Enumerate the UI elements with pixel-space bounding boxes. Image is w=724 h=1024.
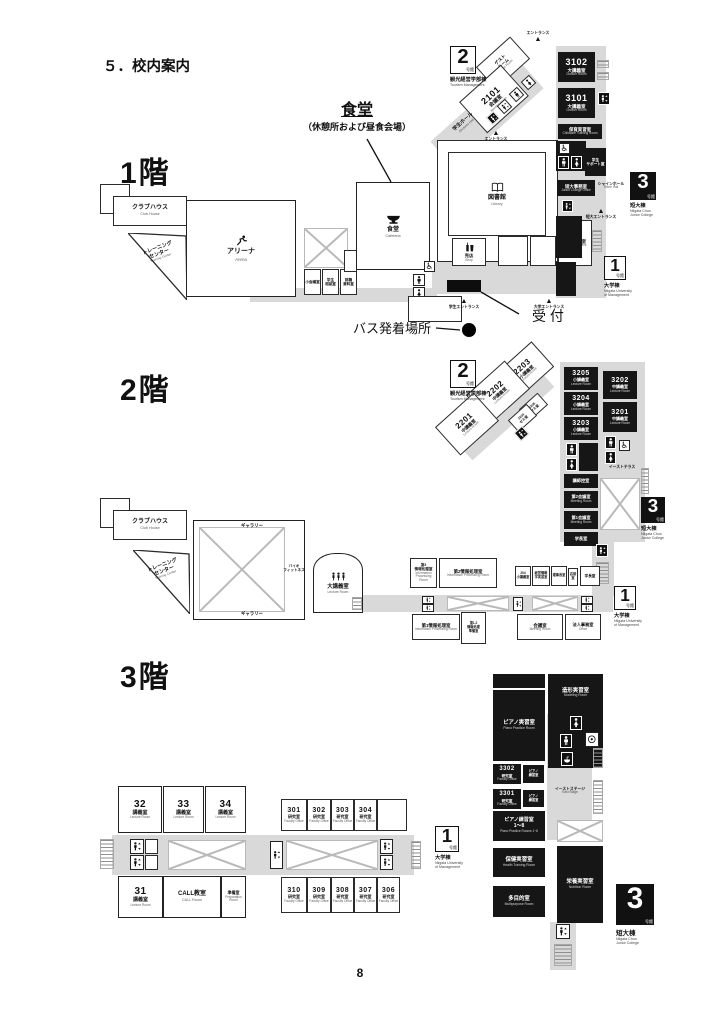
stairs — [592, 230, 602, 252]
building-suffix: 号館 — [656, 518, 664, 522]
elevator — [596, 544, 608, 557]
building-number: 2 — [457, 47, 468, 67]
wc-women-icon — [607, 453, 614, 462]
floor-3-label: 3階 — [120, 652, 171, 696]
building-name-en: Tourism Management — [450, 83, 485, 87]
clubhouse: クラブハウスClub House — [113, 510, 187, 540]
elevator-icon — [424, 597, 432, 603]
east-terrace-label: イーストテラス — [600, 462, 644, 472]
career-room: 就職 資料室 — [340, 269, 357, 295]
elevator — [130, 855, 144, 870]
building-name: 短大棟 — [616, 927, 636, 937]
childcare-room: 保育実習室Childcare Training Room — [558, 124, 602, 139]
room-3202: 3202中講義室Lecture Room — [603, 371, 637, 399]
wc-men-icon — [560, 158, 567, 167]
east-stage-label: イーストステージEast Stage — [548, 784, 592, 798]
gallery-label: ギャラリー — [222, 521, 282, 531]
nutrition-room: 栄養実習室Nutrition Room — [557, 846, 603, 923]
room-sublabel: Piano Practice Rooms 1~8 — [500, 830, 538, 834]
elevator-icon — [132, 857, 142, 868]
jc-office: 短大事務室Junior College Office — [557, 180, 595, 196]
stairs — [597, 60, 609, 68]
building-suffix: 号館 — [449, 846, 457, 850]
floor-1-label: 1階 — [120, 148, 171, 192]
building-suffix: 号館 — [616, 274, 624, 278]
wheelchair-wc: ♿ — [424, 261, 435, 272]
wc-men-icon — [607, 438, 614, 447]
info-prep-room: 第1,2 情報処理 準備室 — [461, 612, 486, 644]
building-number: 3 — [648, 497, 658, 516]
room — [498, 236, 528, 266]
court-area — [304, 228, 348, 268]
meeting-room-1: 第1会議室Meeting Room — [564, 511, 598, 529]
building-marker-2: 2号館観光経営学部棟Tourism Management — [450, 46, 486, 87]
room-sublabel: Lecture Room — [566, 73, 586, 77]
corridor-area — [532, 596, 578, 611]
room-sublabel: Junior College Office — [561, 189, 591, 193]
block — [556, 262, 576, 296]
room-sublabel: Multipurpose Room — [505, 903, 534, 907]
reception-label: 受 付 — [520, 306, 576, 326]
wheelchair-icon: ♿ — [426, 262, 434, 271]
counseling-room: 学生 相談室 — [322, 269, 339, 295]
building-marker-box: 2号館 — [450, 360, 476, 388]
building-marker-box: 1号館 — [604, 256, 626, 280]
student-support-room: 学生 サポート室 — [585, 148, 606, 176]
room-sublabel: Faculty Office — [309, 820, 328, 824]
building-marker-box: 3号館 — [641, 497, 665, 523]
runner-icon — [234, 235, 249, 246]
building-name: 大学棟 — [435, 854, 451, 861]
room-sublabel: Information Processing Room — [415, 628, 457, 632]
room-sublabel: Library — [491, 202, 502, 206]
room-sublabel: Lecture Room — [571, 433, 591, 437]
elevator-icon — [424, 605, 432, 611]
room-number: 3101 — [565, 93, 587, 104]
elevator — [380, 839, 393, 854]
room-sublabel: Nutrition Room — [569, 886, 591, 890]
mgmt-info-lab: 経営情報 学実習室 — [532, 566, 550, 586]
wheelchair-icon: ♿ — [621, 441, 629, 450]
room-label: 204 小講義室 — [517, 572, 530, 580]
building-marker-1: 1号館大学棟Niigata University of Management — [604, 256, 632, 297]
stairs — [593, 780, 603, 814]
room-sublabel: Lecture Room — [215, 816, 235, 820]
elevator — [130, 839, 144, 854]
corporate-office: 法人事務室Office — [565, 614, 601, 640]
preparation-room: 準備室Preparation Room — [221, 876, 246, 918]
room-label: ギャラリー — [241, 611, 263, 616]
room-33: 33講義室Lecture Room — [163, 786, 204, 833]
room-sublabel: Faculty Office — [356, 900, 375, 904]
building-number: 2 — [457, 361, 468, 381]
room-sublabel: Modeling Room — [564, 694, 587, 698]
utility-room — [585, 732, 599, 747]
room-label: 食堂 — [387, 227, 399, 234]
building-marker-3: 3号館短大棟Niigata Chuo Junior College — [616, 884, 654, 945]
elevator — [598, 92, 610, 105]
building-name-en: Tourism Management — [450, 397, 485, 401]
building-marker-box: 2号館 — [450, 46, 476, 74]
building-number: 1 — [610, 257, 620, 274]
campus-map-page: ５．校内案内 1階 2階 3階 食堂 （休憩所および昼食会場） バス発着場所 受… — [0, 0, 724, 1024]
room-number: 3301 — [499, 791, 514, 798]
terrace-area — [600, 478, 640, 530]
room-sublabel: Information Processing Room — [447, 574, 489, 578]
room-sublabel: Club House — [140, 212, 159, 216]
room-sublabel: Lecture Room — [610, 390, 630, 394]
info-processing-2: 第2情報処理室Information Processing Room — [439, 558, 497, 588]
wc-women — [571, 156, 582, 169]
elevator — [556, 924, 570, 939]
room-sublabel: Faculty Office — [497, 803, 516, 807]
elevator-icon — [382, 841, 391, 852]
room-sublabel: Faculty Office — [309, 900, 328, 904]
cafeteria-callout: 食堂 — [317, 96, 397, 120]
room-label: 2204 ゼミ室 — [516, 412, 529, 425]
room-sublabel: Lecture Room — [610, 422, 630, 426]
room-label: 就職 資料室 — [343, 278, 354, 286]
elevator — [380, 855, 393, 870]
wc-men — [566, 443, 577, 456]
stairs — [641, 468, 649, 494]
room-204: 204 小講義室 — [515, 566, 531, 586]
room-310: 310研究室Faculty Office — [281, 877, 307, 913]
block — [556, 216, 582, 258]
wheelchair-wc: ♿ — [619, 440, 630, 451]
room-label: クラブハウス — [132, 205, 168, 212]
room-309: 309研究室Faculty Office — [307, 877, 331, 913]
wc-women-icon — [523, 77, 534, 88]
building-name: 短大棟 — [630, 202, 646, 209]
room-label: 第1,2 情報処理 準備室 — [467, 622, 480, 633]
gallery-label: ギャラリー — [222, 609, 282, 619]
room-sublabel: Club House — [140, 526, 159, 530]
entrance-marker: ▲学生エントランス — [443, 296, 485, 312]
room-sublabel: Faculty Office — [497, 778, 516, 782]
wc-men — [605, 436, 616, 449]
shop: 売店Shop — [452, 238, 486, 266]
cafeteria-callout-title: 食堂 — [317, 96, 397, 120]
room-sublabel: Faculty Office — [379, 900, 398, 904]
elevator — [562, 200, 573, 212]
entrance-triangle-icon: ▲ — [535, 36, 542, 43]
piano-rooms-1-8: ピアノ練習室 1～8Piano Practice Rooms 1~8 — [493, 811, 545, 841]
building-number: 1 — [442, 827, 452, 846]
room-label: クラブハウス — [132, 519, 168, 526]
wc-men — [413, 274, 425, 286]
building-marker-1: 1号館大学棟Niigata University of Management — [435, 826, 463, 869]
cafeteria-callout-subtitle: （休憩所および昼食会場） — [292, 120, 422, 133]
sink-icon — [563, 754, 571, 764]
room-sublabel: Information Processing Room — [411, 572, 436, 583]
building-name: 大学棟 — [614, 612, 630, 619]
elevator-icon — [499, 101, 510, 112]
building-suffix: 号館 — [466, 382, 474, 386]
building-marker-box: 3号館 — [630, 172, 656, 200]
building-name: 短大棟 — [641, 525, 657, 532]
wheelchair-wc: ♿ — [559, 143, 570, 154]
piano-practice-room: ピアノ実習室Piano Practice Room — [493, 690, 545, 761]
elevator-icon — [564, 202, 571, 210]
room-sublabel: Meeting Room — [571, 500, 592, 504]
building-marker-box: 1号館 — [435, 826, 459, 852]
building-suffix: 号館 — [466, 68, 474, 72]
room-sublabel: CALL Room — [182, 898, 202, 902]
room-3204: 3204小講義室Lecture Room — [564, 392, 598, 415]
call-room: CALL教室CALL Room — [163, 876, 221, 918]
building-name-en: Niigata University of Management — [604, 289, 632, 297]
room-label: 小会議室 — [305, 280, 319, 284]
building-name-en: Niigata Chuo Junior College — [616, 937, 639, 945]
room-sublabel: Faculty Office — [333, 820, 352, 824]
room-label: 図書館 — [488, 195, 506, 202]
room-3301: 3301研究室Faculty Office — [493, 789, 521, 809]
room-label: 理事長室 — [553, 574, 566, 578]
bowl-icon — [386, 214, 401, 225]
room-label: 学生 サポート室 — [587, 158, 605, 166]
drawing-room: 応接室 — [568, 568, 578, 586]
jc-president-office: 学長室 — [564, 532, 598, 546]
room-sublabel: Faculty Office — [284, 820, 303, 824]
elevator-icon — [272, 845, 281, 865]
building-suffix: 号館 — [626, 604, 634, 608]
page-number: 8 — [348, 966, 372, 980]
wc-women-icon — [573, 158, 580, 167]
room-label: ギャラリー — [241, 523, 263, 528]
wc-women-icon — [568, 460, 575, 469]
room-label: 学長室 — [575, 537, 588, 542]
wheelchair-icon: ♿ — [561, 144, 569, 153]
clubhouse: クラブハウスClub House — [113, 196, 187, 226]
room-304: 304研究室Faculty Office — [354, 799, 377, 831]
room-301: 301研究室Faculty Office — [281, 799, 307, 831]
room — [145, 839, 158, 854]
health-room: 保健実習室Health Training Room — [493, 848, 545, 877]
elevator-icon — [382, 857, 391, 868]
room-sublabel: Faculty Office — [356, 820, 375, 824]
wc-women — [566, 458, 577, 471]
meeting-room: 会議室Meeting Room — [517, 614, 563, 640]
shine-hall-label: シャインホールShine Hall — [594, 180, 628, 192]
room-sublabel: Lecture Room — [130, 816, 150, 820]
elevator-icon — [515, 599, 522, 609]
building-name-en: Niigata Chuo Junior College — [641, 532, 664, 540]
building-name-en: Niigata Chuo Junior College — [630, 209, 653, 217]
room-label: イーストテラス — [609, 465, 635, 469]
room-label: 経営情報 学実習室 — [535, 572, 548, 580]
block — [493, 674, 545, 688]
building-name-en: Niigata University of Management — [614, 619, 642, 627]
building-marker-box: 3号館 — [616, 884, 654, 925]
room-3203: 3203小講義室Lecture Room — [564, 417, 598, 440]
elevator-icon — [583, 605, 591, 611]
entrance-label: 短大エントランス — [586, 215, 616, 219]
room-sublabel: Lecture Room — [571, 408, 591, 412]
elevator-icon — [558, 926, 568, 937]
room-3102: 3102大講義室Lecture Room — [558, 52, 595, 82]
corridor-area — [168, 840, 246, 870]
stairs — [554, 944, 572, 966]
library: 図書館Library — [448, 152, 546, 236]
room-3205: 3205小講義室Lecture Room — [564, 367, 598, 390]
room-label: ピアノ 練習室 — [529, 770, 539, 778]
elevator — [513, 597, 523, 611]
bio-fitness-label: バイオ フィットネス — [282, 558, 306, 578]
elevator-icon — [132, 841, 142, 852]
book-icon — [490, 182, 505, 193]
room-label: アリーナ — [227, 248, 255, 256]
elevator-icon — [600, 94, 608, 103]
room-number: 33 — [177, 799, 189, 811]
building-name: 観光経営学部棟 — [450, 76, 486, 83]
stairs — [597, 72, 609, 80]
entrance-label: エントランス — [485, 137, 508, 141]
room-label: 講師控室 — [573, 479, 590, 484]
entrance-label: 学生エントランス — [449, 305, 479, 309]
room-306: 306研究室Faculty Office — [377, 877, 400, 913]
modeling-room: 造形実習室Modeling Room — [548, 674, 603, 712]
room-sublabel: Piano Practice Room — [503, 727, 534, 731]
room-sublabel: East Stage — [562, 791, 578, 795]
elevator — [422, 596, 434, 604]
building-marker-3: 3号館短大棟Niigata Chuo Junior College — [630, 172, 656, 217]
info-processing-1: 第1情報処理室Information Processing Room — [412, 614, 460, 640]
room-label: 応接室 — [569, 573, 577, 581]
room-sublabel: Lecture Room — [173, 816, 193, 820]
chairman-office: 理事長室 — [551, 566, 567, 586]
room-sublabel: Preparation Room — [225, 896, 241, 904]
entrance-marker: エントランス▲ — [518, 28, 558, 46]
room-303: 303研究室Faculty Office — [331, 799, 354, 831]
room-32: 32講義室Lecture Room — [118, 786, 162, 833]
room-sublabel: Meeting Room — [530, 628, 551, 632]
entrance-marker: ▲短大エントランス — [580, 206, 622, 222]
room-sublabel: Lecture Room — [328, 591, 349, 595]
room-sublabel: Cafeteria — [385, 234, 400, 238]
room-sublabel: Childcare Training Room — [562, 132, 597, 136]
wc-women-icon — [572, 718, 580, 728]
piano-room-small: ピアノ 練習室 — [523, 765, 544, 783]
room-sublabel: Meeting Room — [571, 521, 592, 525]
terrace-area — [557, 820, 603, 842]
room-3201: 3201中講義室Lecture Room — [603, 402, 637, 432]
elevator-icon — [516, 428, 527, 439]
meeting-room-2: 第2会議室Meeting Room — [564, 491, 598, 508]
corridor-area — [447, 596, 509, 611]
room-3302: 3302研究室Faculty Office — [493, 764, 521, 784]
room-sublabel: Health Training Room — [503, 864, 535, 868]
block — [579, 443, 598, 471]
floor-2-label: 2階 — [120, 365, 171, 409]
room-label: 学長室 — [585, 574, 596, 578]
wc-men-icon — [568, 445, 575, 454]
arena: アリーナArena — [186, 200, 296, 297]
stairs — [100, 839, 114, 869]
small-meeting-room: 小会議室 — [304, 269, 321, 295]
elevator — [581, 596, 593, 604]
sink-room — [561, 752, 573, 766]
people-icon — [331, 571, 346, 582]
page-title: ５．校内案内 — [103, 55, 190, 76]
wc-women — [570, 716, 582, 730]
corridor-area — [286, 840, 378, 870]
bus-stop-label: バス発着場所 — [350, 318, 434, 337]
room-number: 34 — [219, 799, 231, 811]
room-label: CALL教室 — [178, 891, 206, 898]
room-sublabel: Faculty Office — [284, 900, 303, 904]
elevator — [581, 604, 593, 612]
building-marker-1: 1号館大学棟Niigata University of Management — [614, 586, 642, 627]
elevator — [422, 604, 434, 612]
building-suffix: 号館 — [645, 920, 653, 924]
building-name: 観光経営学部棟 — [450, 390, 486, 397]
room-sublabel: Shine Hall — [604, 186, 619, 190]
info-processing-3: 第3 情報処理室Information Processing Room — [410, 558, 437, 588]
building-marker-box: 1号館 — [614, 586, 636, 610]
room — [145, 855, 158, 870]
room-label: ピアノ 練習室 — [529, 795, 539, 803]
room-308: 308研究室Faculty Office — [331, 877, 354, 913]
room-label: 学生 相談室 — [325, 278, 336, 286]
room-number: 3302 — [499, 766, 514, 773]
entrance-marker: ▲エントランス — [476, 128, 516, 144]
room-sublabel: Lecture Room — [130, 904, 150, 908]
room-34: 34講義室Lecture Room — [205, 786, 246, 833]
bus-stop-dot-icon — [462, 323, 476, 337]
utility-icon — [587, 734, 597, 745]
piano-room-small: ピアノ 練習室 — [523, 790, 544, 807]
wc-men — [560, 734, 572, 748]
elevator — [270, 841, 283, 869]
room-sublabel: Faculty Office — [333, 900, 352, 904]
president-office: 学長室 — [580, 566, 600, 586]
room-number: 3102 — [565, 57, 587, 68]
cafeteria: 食堂Cafeteria — [356, 182, 430, 270]
room-sublabel: Lecture Room — [571, 383, 591, 387]
room — [377, 799, 407, 831]
wc-men — [558, 156, 569, 169]
stairs — [593, 748, 603, 768]
room-307: 307研究室Faculty Office — [354, 877, 377, 913]
room — [530, 236, 556, 266]
room-sublabel: Office — [579, 628, 587, 632]
room-sublabel: Lecture Room — [566, 109, 586, 113]
wc-men-icon — [511, 89, 522, 100]
stairs — [411, 841, 421, 869]
room-31: 31講義室Lecture Room — [118, 876, 163, 918]
room-302: 302研究室Faculty Office — [307, 799, 331, 831]
room-3101: 3101大講義室Lecture Room — [558, 88, 595, 118]
elevator-icon — [488, 113, 498, 123]
elevator-icon — [583, 597, 591, 603]
building-number: 3 — [637, 172, 648, 192]
building-marker-2: 2号館観光経営学部棟Tourism Management — [450, 360, 486, 401]
building-suffix: 号館 — [647, 195, 655, 199]
room-sublabel: Shop — [465, 259, 472, 263]
building-number: 1 — [620, 587, 630, 604]
building-name-en: Niigata University of Management — [435, 861, 463, 869]
room-number: 32 — [134, 799, 146, 811]
building-marker-3: 3号館短大棟Niigata Chuo Junior College — [641, 497, 665, 540]
reception-desk — [447, 280, 481, 292]
multipurpose-room: 多目的室Multipurpose Room — [493, 886, 545, 917]
gym-floor — [199, 527, 285, 612]
room-sublabel: Arena — [235, 257, 247, 262]
wc-men-icon — [562, 736, 570, 746]
elevator-icon — [598, 546, 606, 555]
building-number: 3 — [627, 884, 643, 914]
